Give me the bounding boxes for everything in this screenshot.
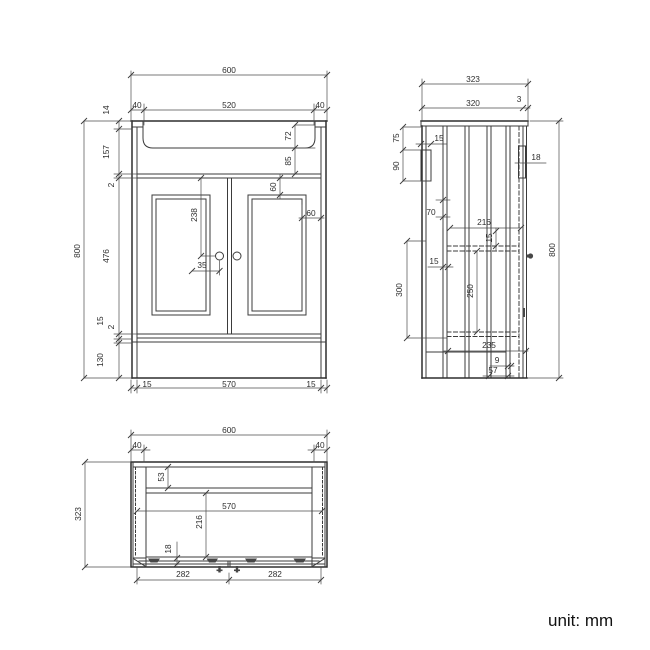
dim-side-opening-height: 300 bbox=[394, 283, 404, 297]
dim-front-right-margin: 40 bbox=[315, 100, 325, 110]
dim-plan-inner-depth: 216 bbox=[194, 515, 204, 529]
dim-side-top-depth: 320 bbox=[466, 98, 480, 108]
dim-front-overall-width: 600 bbox=[222, 65, 236, 75]
dim-side-front-edge: 3 bbox=[517, 94, 522, 104]
dim-plan-left-margin: 40 bbox=[132, 440, 142, 450]
dim-side-plinth-depth: 57 bbox=[488, 365, 498, 375]
dim-side-overall-height: 800 bbox=[547, 243, 557, 257]
dim-side-bracket-height: 90 bbox=[391, 161, 401, 171]
dim-front-left-margin: 40 bbox=[132, 100, 142, 110]
knob-profile bbox=[528, 253, 533, 258]
dim-side-base-depth: 235 bbox=[482, 340, 496, 350]
dim-side-shelf-spacing: 250 bbox=[465, 284, 475, 298]
technical-drawing: 600 40 520 40 14 157 2 476 15 bbox=[0, 0, 650, 650]
dim-plan-door-thickness: 18 bbox=[163, 544, 173, 554]
dim-plan-inner-width: 570 bbox=[222, 501, 236, 511]
dim-front-bottom-gap: 2 bbox=[106, 324, 116, 329]
dim-side-bracket-width: 15 bbox=[434, 133, 444, 143]
dim-front-upper-section: 157 bbox=[101, 145, 111, 159]
dim-front-basin-width: 520 bbox=[222, 100, 236, 110]
dim-front-handle-drop: 238 bbox=[189, 208, 199, 222]
dim-front-door-section: 476 bbox=[101, 249, 111, 263]
dim-plan-overall-depth: 323 bbox=[73, 507, 83, 521]
dim-side-inner-depth: 216 bbox=[477, 217, 491, 227]
dim-front-basin-depth: 72 bbox=[283, 131, 293, 141]
dim-side-overall-depth: 323 bbox=[466, 74, 480, 84]
dim-plan-right-margin: 40 bbox=[315, 440, 325, 450]
dim-plan-overall-width: 600 bbox=[222, 425, 236, 435]
dim-side-shelf-thickness: 15 bbox=[484, 233, 494, 243]
dim-front-left-side-thickness: 15 bbox=[142, 379, 152, 389]
dim-side-rail-drop: 70 bbox=[426, 207, 436, 217]
dim-front-right-side-thickness: 15 bbox=[306, 379, 316, 389]
dim-front-plinth-height: 130 bbox=[95, 353, 105, 367]
dim-front-inner-width: 570 bbox=[222, 379, 236, 389]
dim-front-top-gap: 2 bbox=[106, 182, 116, 187]
dim-side-plinth-recess: 9 bbox=[495, 355, 500, 365]
hinge-mark bbox=[523, 308, 526, 317]
dim-front-handle-offset: 35 bbox=[197, 260, 207, 270]
dim-side-top-rail: 18 bbox=[531, 152, 541, 162]
dim-front-overall-height: 800 bbox=[72, 244, 82, 258]
dim-side-bracket-offset: 75 bbox=[391, 133, 401, 143]
dim-front-panel-top-inset: 60 bbox=[268, 182, 278, 192]
dim-front-panel-side-inset: 60 bbox=[306, 208, 316, 218]
unit-note: unit: mm bbox=[548, 611, 613, 630]
dim-side-panel-thickness: 15 bbox=[429, 256, 439, 266]
dim-plan-right-door-width: 282 bbox=[268, 569, 282, 579]
dim-front-bottom-rail: 15 bbox=[95, 316, 105, 326]
dim-plan-back-rail: 53 bbox=[156, 472, 166, 482]
dim-front-rim-height: 14 bbox=[101, 105, 111, 115]
dim-plan-left-door-width: 282 bbox=[176, 569, 190, 579]
dim-front-apron-height: 85 bbox=[283, 156, 293, 166]
